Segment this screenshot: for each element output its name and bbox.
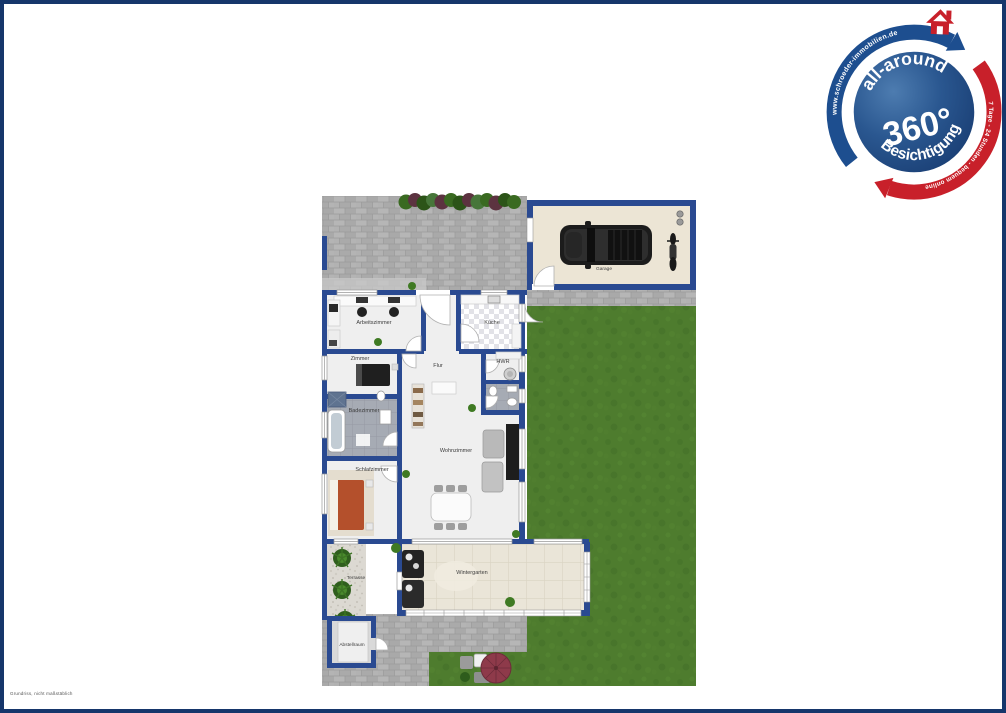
footer-disclaimer: Grundriss, nicht maßstäblich [10,691,73,696]
360-badge: www.schroeder-immobilien.de 7 Tage - 24 … [816,8,1006,208]
arbeitszimmer-label: Arbeitszimmer [356,320,391,326]
lawn-right [527,306,696,686]
parasol-icon [481,653,511,683]
room-garage: Garage [527,200,696,290]
schlafzimmer-furniture [328,470,374,536]
garage-bin-icon [677,211,683,217]
terrasse-label: Terrasse [347,575,366,581]
schlafzimmer-label: Schlafzimmer [355,467,388,473]
garage-apron-pavement [527,290,696,306]
garden-furniture [460,653,511,683]
wohnzimmer-label: Wohnzimmer [440,448,472,454]
flur-label: Flur [433,363,443,369]
wintergarten-label: Wintergarten [456,570,488,576]
car-icon [560,221,652,269]
plant-driveway [408,282,416,290]
kueche-label: Küche [484,320,500,326]
garage-bin-icon [677,219,683,225]
badezimmer-label: Badezimmer [349,408,380,414]
zimmer-label: Zimmer [351,356,370,362]
abstellraum-label: Abstellraum [339,642,364,648]
garage-label: Garage [596,266,612,272]
hwr-label: HWR [496,359,509,365]
room-wintergarten [399,542,587,612]
floorplan-page: Garage [0,0,1006,713]
